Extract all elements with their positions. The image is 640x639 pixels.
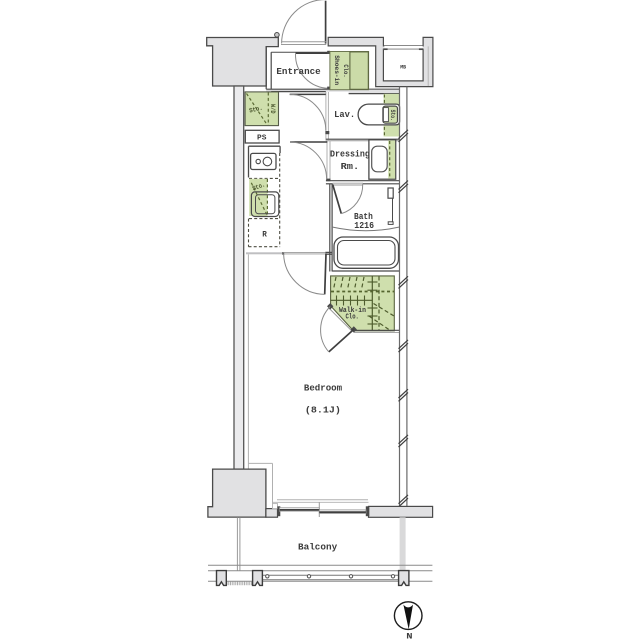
svg-text:W/D: W/D — [269, 104, 276, 114]
svg-text:N: N — [406, 631, 412, 639]
svg-text:1216: 1216 — [354, 220, 374, 231]
svg-text:(8.1J): (8.1J) — [305, 404, 341, 415]
svg-text:Clo.: Clo. — [346, 314, 359, 322]
svg-text:Clo.: Clo. — [342, 64, 349, 77]
svg-text:Rm.: Rm. — [341, 161, 360, 172]
svg-text:Bedroom: Bedroom — [304, 383, 342, 394]
svg-text:Sto.: Sto. — [389, 110, 396, 121]
svg-text:Entrance: Entrance — [276, 66, 321, 77]
svg-text:Dressing: Dressing — [330, 149, 370, 160]
svg-text:Shoes-in: Shoes-in — [333, 55, 340, 85]
svg-text:PS: PS — [257, 135, 267, 143]
svg-text:MB: MB — [400, 63, 406, 70]
svg-text:Balcony: Balcony — [298, 541, 337, 552]
svg-text:R: R — [262, 231, 267, 240]
svg-text:Lav.: Lav. — [334, 109, 355, 120]
